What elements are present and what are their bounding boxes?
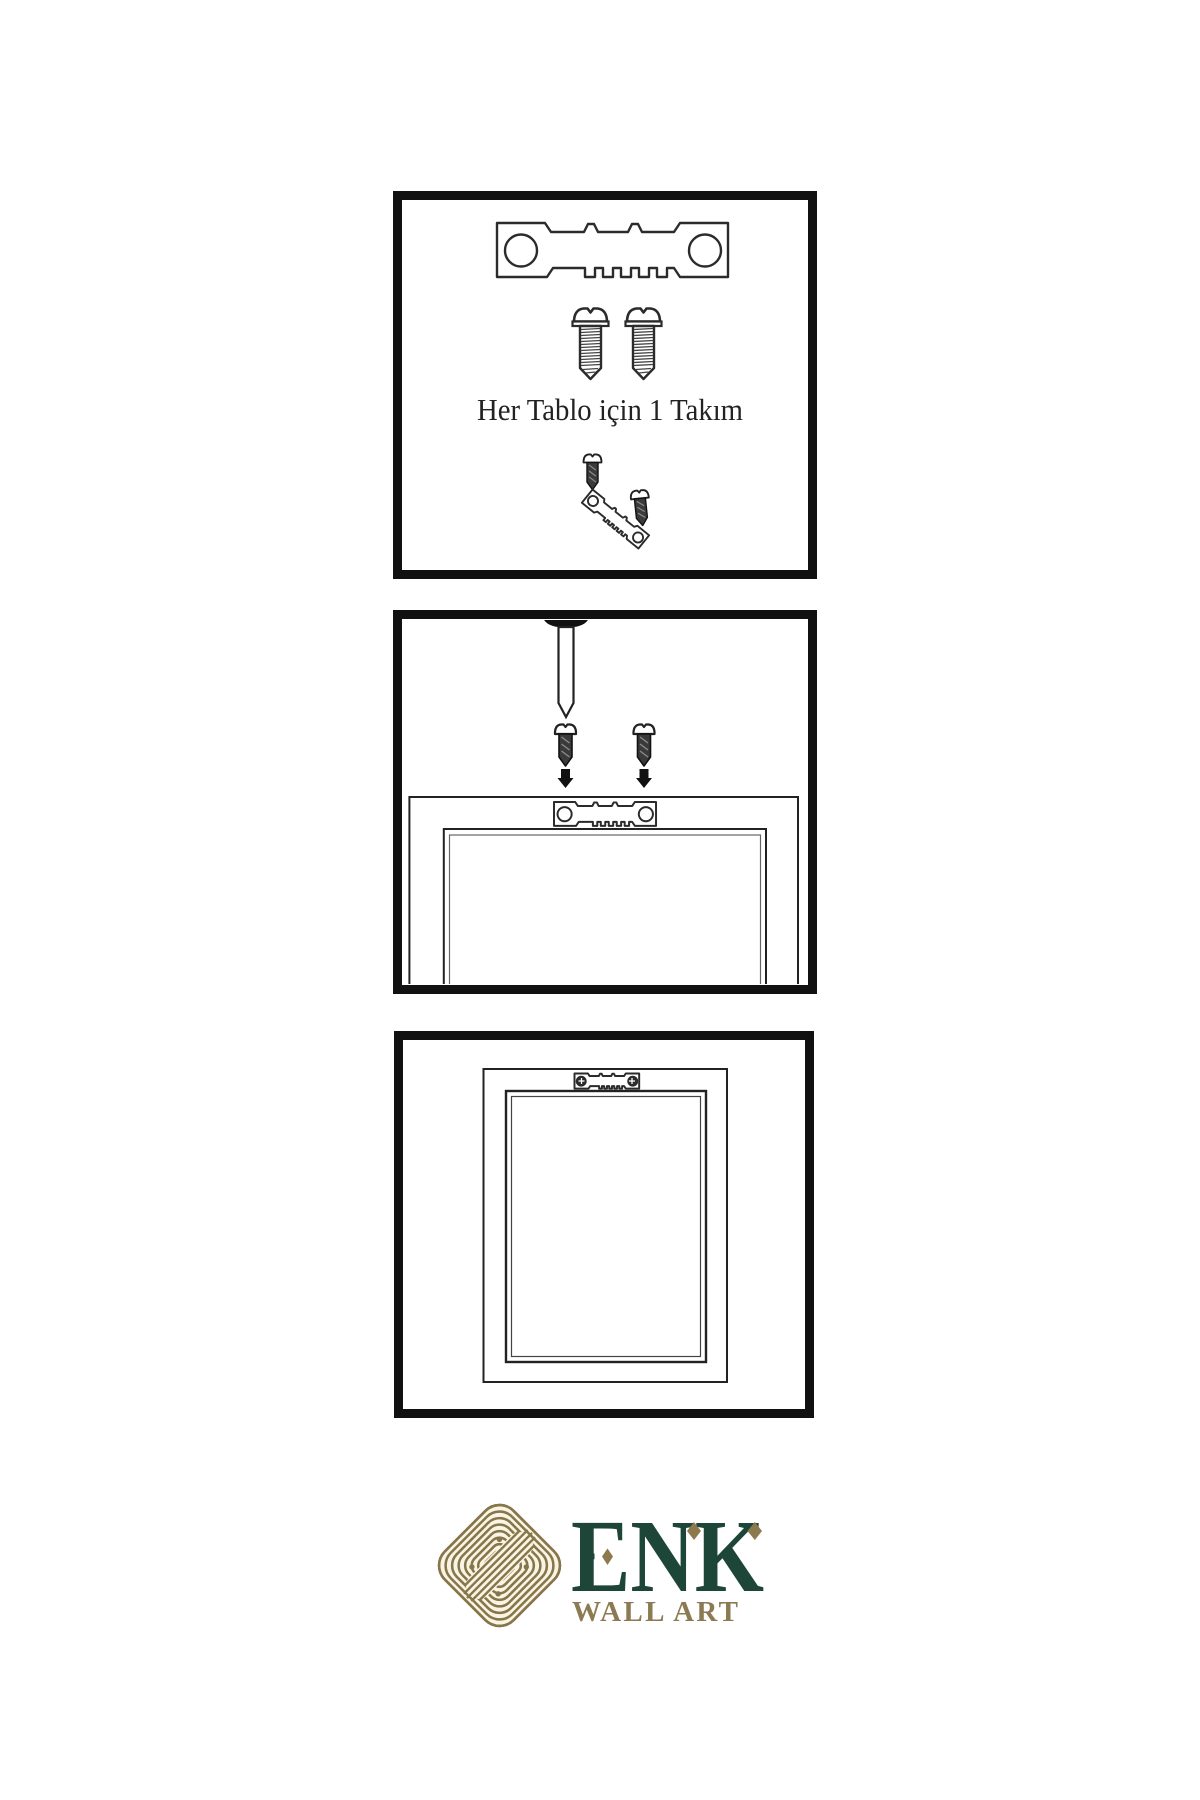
svg-text:WALL ART: WALL ART — [572, 1596, 738, 1628]
svg-text:Her Tablo için 1 Takım: Her Tablo için 1 Takım — [477, 392, 743, 427]
